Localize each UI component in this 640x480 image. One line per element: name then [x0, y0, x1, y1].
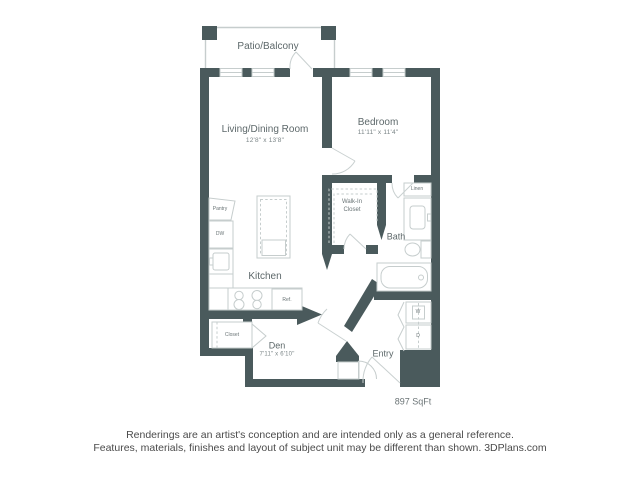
bath-vanity [404, 198, 431, 240]
walkin-closet-label: Walk-In Closet [342, 199, 362, 215]
window [252, 69, 274, 77]
bathtub [377, 263, 431, 291]
bedroom-dims: 11'11" x 11'4" [358, 129, 399, 137]
toilet [405, 241, 431, 258]
disclaimer-line-1: Renderings are an artist's conception an… [0, 429, 640, 441]
kitchen-label: Kitchen [248, 271, 281, 283]
washer-label: W [416, 309, 421, 315]
window [220, 69, 242, 77]
floor-plan-drawing [0, 0, 640, 480]
dryer-label: D [416, 333, 420, 339]
window [383, 69, 405, 77]
square-footage: 897 SqFt [395, 397, 432, 408]
washer-dryer-bifold-doors [398, 302, 404, 351]
den-label: Den [269, 341, 286, 352]
stove [228, 288, 272, 310]
walkin-closet-door [344, 234, 366, 249]
pantry-label: Pantry [213, 206, 227, 212]
den-closet-label: Closet [225, 332, 239, 338]
den-closet-door [252, 324, 266, 348]
bedroom-door [332, 148, 355, 174]
living-room-dims: 12'8" x 13'8" [246, 137, 284, 145]
linen-label: Linen [411, 186, 423, 192]
kitchen-island [257, 196, 290, 258]
disclaimer-line-2: Features, materials, finishes and layout… [0, 442, 640, 454]
living-room-label: Living/Dining Room [222, 124, 309, 136]
entry-label: Entry [372, 349, 393, 360]
patio-door [290, 52, 312, 69]
walkin-closet-shelves [329, 189, 377, 243]
patio-label: Patio/Balcony [237, 41, 298, 53]
bedroom-label: Bedroom [358, 117, 399, 129]
den-dims: 7'11" x 6'10" [259, 351, 294, 358]
refrigerator-label: Ref. [282, 297, 291, 303]
window [350, 69, 372, 77]
entry-door [363, 357, 400, 383]
bath-label: Bath [387, 232, 406, 243]
den-hall-door [318, 309, 346, 341]
entry-closet [338, 362, 359, 379]
kitchen-sink [209, 249, 233, 274]
floor-plan: Patio/Balcony Living/Dining Room 12'8" x… [0, 0, 640, 480]
dishwasher-label: DW [216, 231, 224, 237]
